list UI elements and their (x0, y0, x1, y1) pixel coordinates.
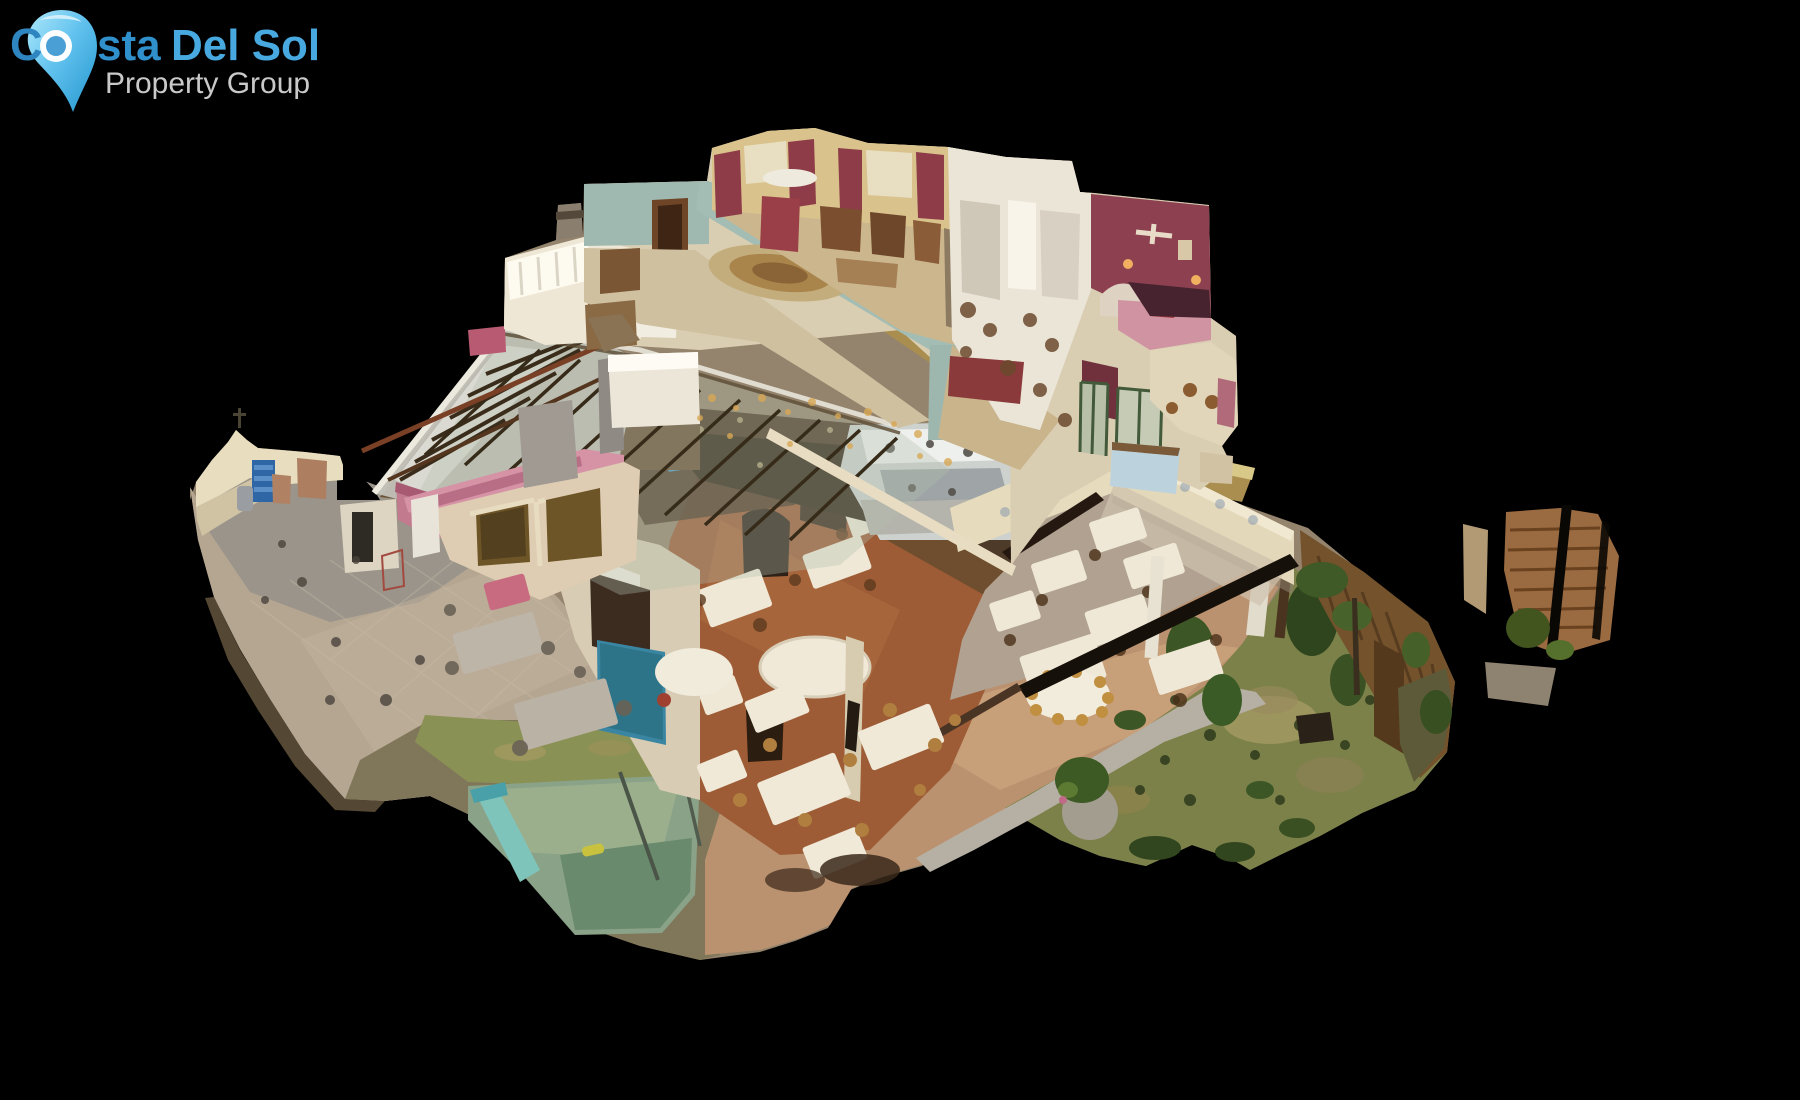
svg-text:sta: sta (97, 21, 161, 70)
svg-text:Property Group: Property Group (105, 67, 310, 100)
svg-text:Del Sol: Del Sol (171, 21, 320, 70)
svg-text:C: C (10, 19, 43, 70)
